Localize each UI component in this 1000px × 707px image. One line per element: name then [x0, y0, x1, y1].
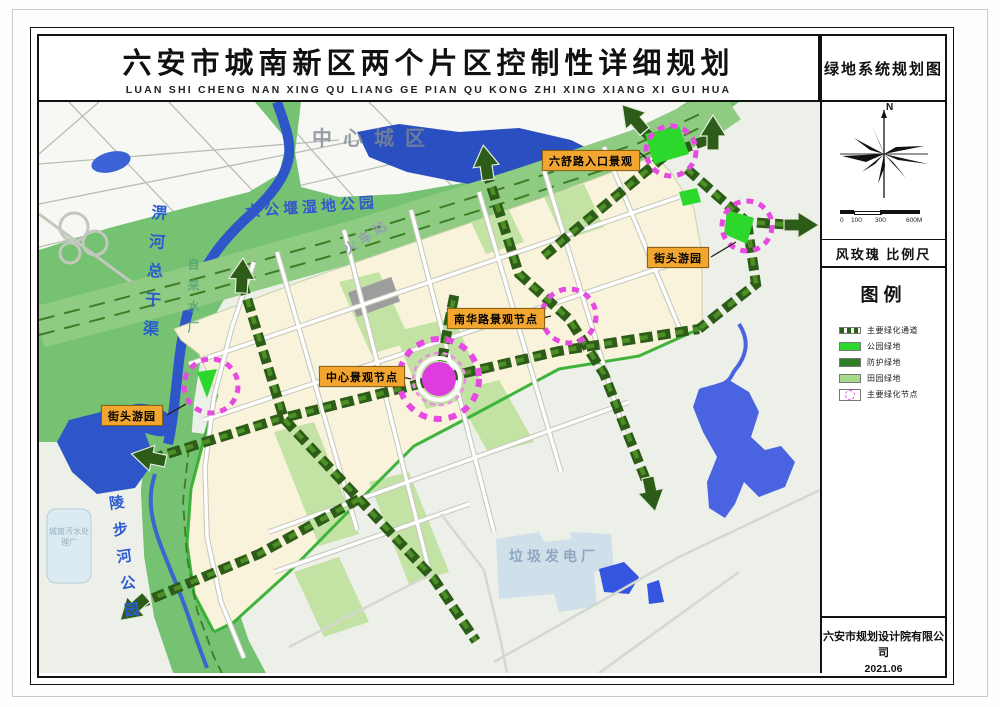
- side-panel: 绿地系统规划图 N: [820, 36, 945, 673]
- legend-item-protective-green: 防护绿地: [839, 357, 945, 368]
- legend-item-park-green: 公园绿地: [839, 341, 945, 352]
- map-sheet-name: 绿地系统规划图: [822, 36, 945, 102]
- callout-nanhua-road-node: 南华路景观节点: [447, 308, 545, 329]
- plan-title-pinyin: LUAN SHI CHENG NAN XING QU LIANG GE PIAN…: [39, 84, 818, 96]
- wind-rose: [836, 104, 932, 204]
- scale-tick-600: 600M: [906, 217, 922, 224]
- sewage-plant-parcel: [47, 509, 91, 583]
- drawing-sheet: 六安市城南新区两个片区控制性详细规划 LUAN SHI CHENG NAN XI…: [30, 27, 954, 685]
- legend-title: 图例: [822, 281, 945, 307]
- plan-title: 六安市城南新区两个片区控制性详细规划: [39, 40, 818, 82]
- legend-item-corridor: 主要绿化通道: [839, 325, 945, 336]
- callout-entrance-landscape: 六舒路入口景观: [542, 150, 640, 171]
- drawing-frame: 六安市城南新区两个片区控制性详细规划 LUAN SHI CHENG NAN XI…: [37, 34, 947, 678]
- field-green-swatch: [839, 374, 861, 383]
- map-area: 中心城区 大公堰湿地公园 火车站 垃圾发电厂 城南污水处理厂 淠河总干渠 自来水…: [39, 102, 820, 673]
- plan-date: 2021.06: [822, 663, 945, 675]
- legend-item-node: 主要绿化节点: [839, 389, 945, 401]
- title-block-company: 六安市规划设计院有限公司 2021.06: [822, 616, 945, 673]
- corridor-swatch: [839, 327, 861, 334]
- legend: 图例 主要绿化通道 公园绿地 防护绿地: [822, 269, 945, 617]
- scale-tick-100: 100: [851, 217, 862, 224]
- title-block: 六安市城南新区两个片区控制性详细规划 LUAN SHI CHENG NAN XI…: [39, 36, 820, 102]
- plan-sheet-page: 六安市城南新区两个片区控制性详细规划 LUAN SHI CHENG NAN XI…: [0, 0, 1000, 707]
- compass-caption: 风玫瑰 比例尺: [822, 239, 945, 266]
- scale-tick-300: 300: [875, 217, 886, 224]
- compass-cell: N 0 1: [822, 102, 945, 268]
- scale-tick-0: 0: [840, 217, 844, 224]
- callout-central-node: 中心景观节点: [319, 366, 405, 387]
- legend-item-field-green: 田园绿地: [839, 373, 945, 384]
- callout-street-park-west: 街头游园: [101, 405, 163, 426]
- map-canvas: [39, 102, 820, 673]
- protective-green-swatch: [839, 358, 861, 367]
- node-swatch: [839, 389, 861, 401]
- company-name: 六安市规划设计院有限公司: [822, 628, 945, 660]
- park-green-swatch: [839, 342, 861, 351]
- callout-street-park-east: 街头游园: [647, 247, 709, 268]
- scale-bar: 0 100 300 600M: [840, 210, 924, 226]
